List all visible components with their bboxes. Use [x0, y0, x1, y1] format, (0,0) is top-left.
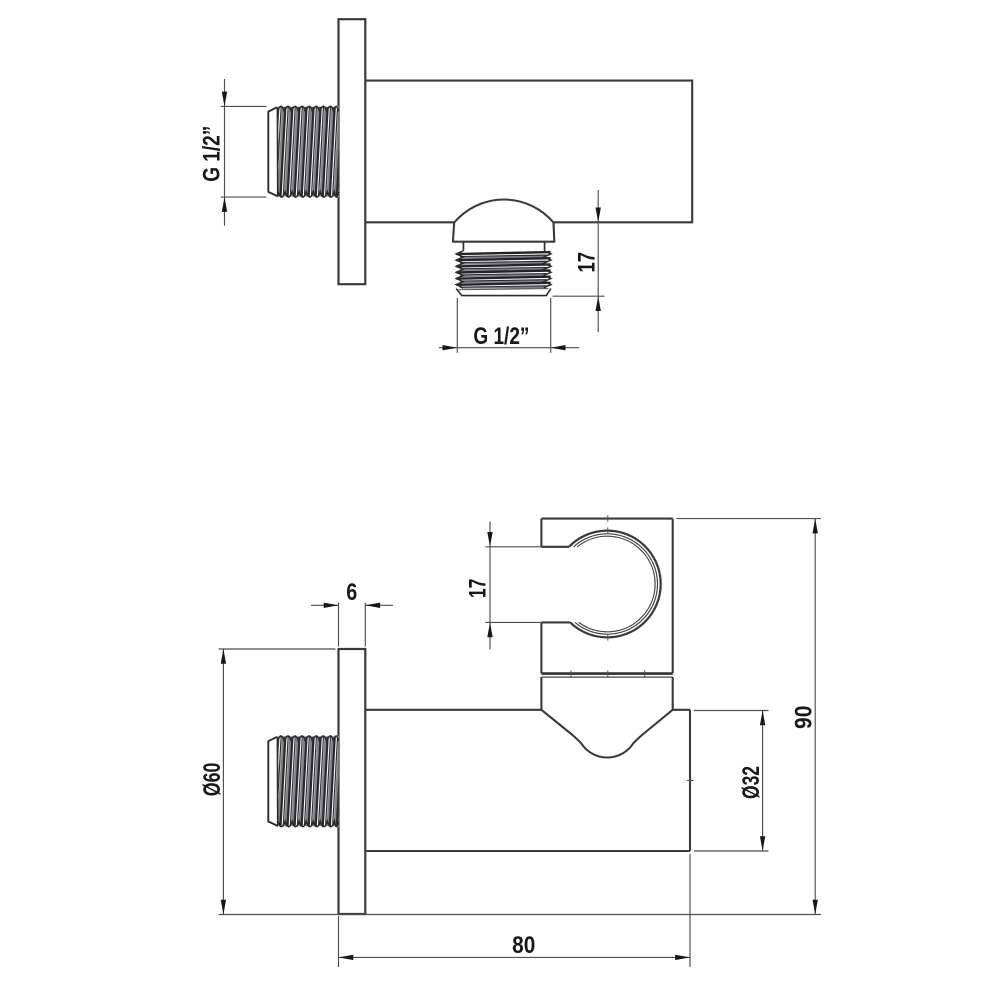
- svg-text:G 1/2”: G 1/2”: [473, 323, 529, 350]
- svg-text:G 1/2”: G 1/2”: [198, 126, 225, 182]
- svg-text:17: 17: [464, 579, 491, 599]
- svg-text:Ø60: Ø60: [199, 763, 226, 797]
- svg-text:17: 17: [574, 252, 601, 273]
- svg-text:80: 80: [512, 932, 535, 959]
- svg-text:6: 6: [346, 579, 357, 606]
- svg-text:Ø32: Ø32: [738, 766, 765, 799]
- svg-text:90: 90: [791, 706, 818, 729]
